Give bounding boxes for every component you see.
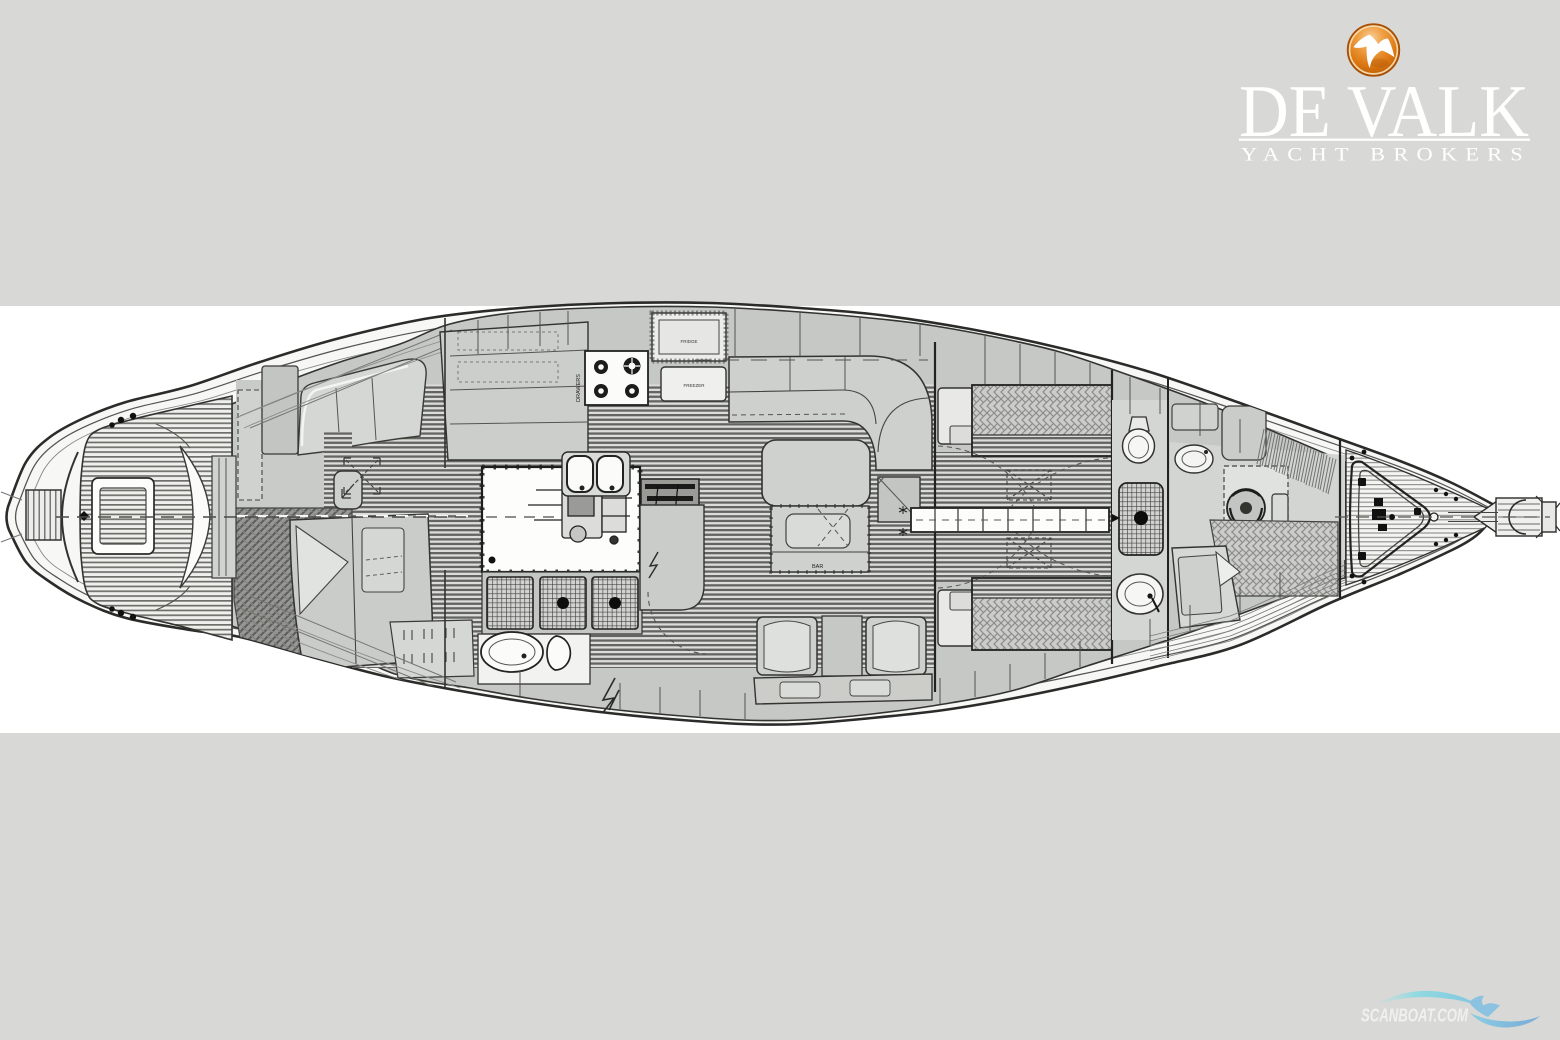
svg-text:SCANBOAT.COM: SCANBOAT.COM <box>1361 1005 1468 1026</box>
svg-text:YACHT BROKERS: YACHT BROKERS <box>1241 145 1531 166</box>
svg-text:FRIDGE: FRIDGE <box>680 339 697 344</box>
svg-text:DRAWERS: DRAWERS <box>576 374 582 402</box>
svg-text:FREEZER: FREEZER <box>683 383 705 388</box>
svg-text:BAR: BAR <box>812 564 823 570</box>
